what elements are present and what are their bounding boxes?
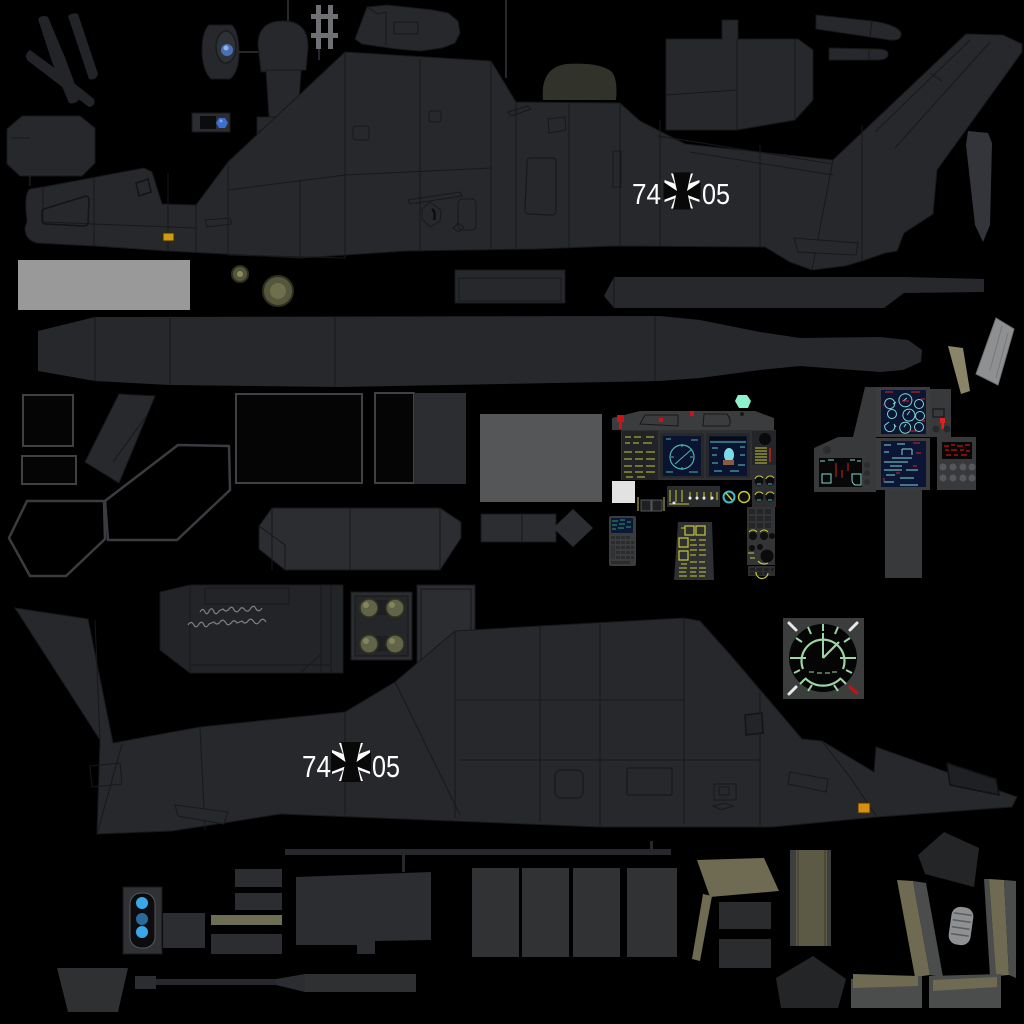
svg-text:05: 05 xyxy=(702,179,730,211)
svg-text:74: 74 xyxy=(302,749,331,784)
svg-text:74: 74 xyxy=(632,179,661,211)
svg-text:05: 05 xyxy=(372,749,400,784)
